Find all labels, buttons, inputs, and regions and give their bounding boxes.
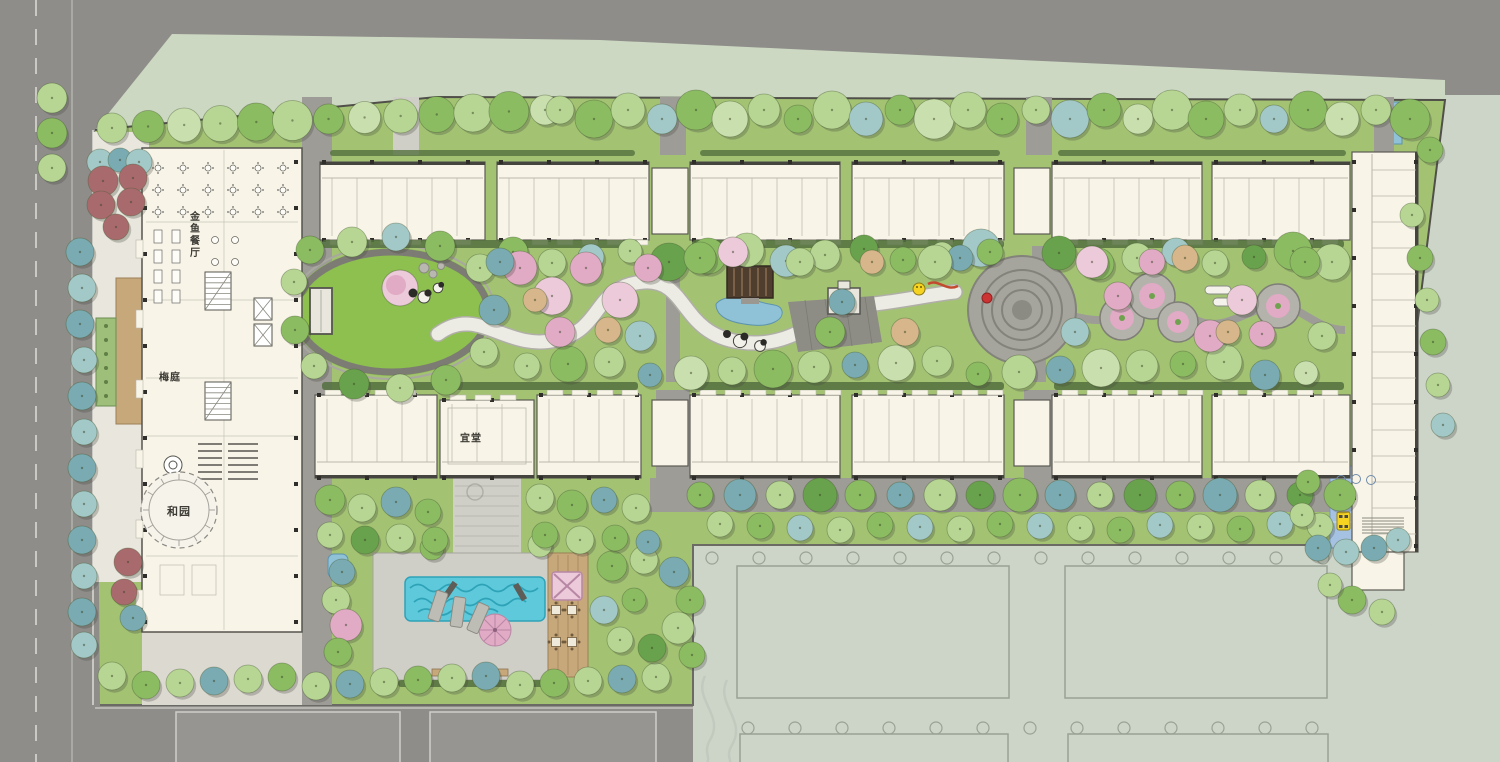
column: [1352, 400, 1356, 404]
tree-center-mark: [967, 109, 969, 111]
dining-chair: [182, 194, 184, 196]
boulder: [419, 263, 429, 273]
dining-table: [280, 165, 286, 171]
tree-center-mark: [79, 251, 81, 253]
tree-center-mark: [571, 504, 573, 506]
column: [499, 160, 503, 164]
tree-center-mark: [1159, 524, 1161, 526]
tree-center-mark: [1307, 481, 1309, 483]
tree-center-mark: [83, 359, 85, 361]
dining-chair: [262, 167, 264, 169]
column: [1214, 393, 1218, 397]
tree-center-mark: [879, 524, 881, 526]
tree-center-mark: [553, 682, 555, 684]
tree-center-mark: [689, 599, 691, 601]
tree-center-mark: [51, 132, 53, 134]
planter-center: [1275, 303, 1281, 309]
deck-chair: [571, 602, 574, 605]
dining-table: [255, 165, 261, 171]
tree-center-mark: [138, 161, 140, 163]
tree-center-mark: [1139, 494, 1141, 496]
column: [1310, 160, 1314, 164]
tree-center-mark: [399, 115, 401, 117]
tree-center-mark: [445, 379, 447, 381]
tree-center-mark: [895, 362, 897, 364]
tree-center-mark: [1091, 261, 1093, 263]
dining-table: [172, 290, 180, 303]
column: [294, 160, 298, 164]
planter-plant-dot: [104, 324, 108, 328]
tree-center-mark: [1319, 525, 1321, 527]
tree-center-mark: [732, 251, 734, 253]
building-roof-edge: [1212, 162, 1350, 165]
balcony: [1297, 390, 1313, 395]
tree-center-mark: [1409, 118, 1411, 120]
tree-center-mark: [337, 651, 339, 653]
dining-chair: [237, 189, 239, 191]
column: [143, 252, 147, 256]
dining-chair: [227, 189, 229, 191]
tree-center-mark: [1307, 109, 1309, 111]
tree-center-mark: [633, 599, 635, 601]
dining-chair: [187, 167, 189, 169]
boulder: [429, 270, 437, 278]
building-outline: [1212, 395, 1350, 478]
tree-center-mark: [1100, 367, 1102, 369]
deck-chair: [555, 616, 558, 619]
column: [539, 476, 543, 480]
dining-chair: [252, 189, 254, 191]
tree-center-mark: [871, 261, 873, 263]
tree-center-mark: [1184, 257, 1186, 259]
tree-center-mark: [1419, 257, 1421, 259]
fountain: [164, 456, 182, 474]
tree-center-mark: [417, 679, 419, 681]
column: [1214, 160, 1218, 164]
tree-center-mark: [179, 682, 181, 684]
adjacent-building-outline: [430, 712, 656, 762]
tree-center-mark: [643, 559, 645, 561]
column: [635, 476, 639, 480]
dining-chair: [257, 206, 259, 208]
tree-center-mark: [719, 523, 721, 525]
column: [1150, 476, 1154, 480]
tree-center-mark: [526, 365, 528, 367]
dining-chair: [152, 211, 154, 213]
tree-center-mark: [315, 685, 317, 687]
dining-table: [154, 270, 162, 283]
tree-center-mark: [729, 118, 731, 120]
tree-center-mark: [132, 617, 134, 619]
tree-center-mark: [1059, 369, 1061, 371]
tree-center-mark: [1341, 118, 1343, 120]
dining-chair: [287, 167, 289, 169]
column: [854, 476, 858, 480]
lobby-connector: [1014, 168, 1050, 234]
tree-center-mark: [294, 329, 296, 331]
column: [143, 436, 147, 440]
column: [413, 476, 417, 480]
tree-center-mark: [799, 527, 801, 529]
tree-center-mark: [451, 677, 453, 679]
balcony: [500, 395, 516, 400]
column: [294, 436, 298, 440]
tree-center-mark: [611, 565, 613, 567]
dining-chair: [257, 194, 259, 196]
tree-center-mark: [1119, 529, 1121, 531]
tree-center-mark: [959, 528, 961, 530]
site-plan: 金鱼餐厅 梅庭 和园 宜堂: [0, 0, 1500, 762]
tree-center-mark: [1305, 372, 1307, 374]
balcony: [547, 390, 563, 395]
balcony: [862, 390, 878, 395]
column: [418, 160, 422, 164]
residential-building: [1052, 390, 1203, 480]
tree-center-mark: [690, 372, 692, 374]
lobby-connector: [652, 400, 688, 466]
dining-chair: [182, 172, 184, 174]
tree-center-mark: [363, 116, 365, 118]
tree-center-mark: [539, 497, 541, 499]
dining-chair: [202, 167, 204, 169]
column: [1414, 160, 1418, 164]
tree-center-mark: [551, 295, 553, 297]
building-outline: [852, 395, 1004, 478]
tree-center-mark: [854, 364, 856, 366]
dining-chair: [207, 172, 209, 174]
tree-center-mark: [1059, 494, 1061, 496]
bus-window: [1345, 525, 1349, 528]
column: [442, 476, 446, 480]
tree-center-mark: [797, 118, 799, 120]
building-roof-edge: [690, 475, 840, 478]
tree-center-mark: [81, 467, 83, 469]
tree-center-mark: [1019, 494, 1021, 496]
dining-chair: [232, 206, 234, 208]
dining-chair: [207, 216, 209, 218]
tree-center-mark: [99, 161, 101, 163]
column: [294, 574, 298, 578]
tree-center-mark: [1261, 333, 1263, 335]
tree-center-mark: [1437, 384, 1439, 386]
deck-chair: [571, 634, 574, 637]
dining-table: [155, 209, 161, 215]
tree-center-mark: [479, 267, 481, 269]
column: [1352, 448, 1356, 452]
balcony: [1162, 390, 1178, 395]
column: [692, 160, 696, 164]
tree-center-mark: [79, 323, 81, 325]
tree-center-mark: [439, 245, 441, 247]
tree-center-mark: [902, 259, 904, 261]
balcony: [700, 390, 716, 395]
dining-chair: [182, 184, 184, 186]
dining-table: [180, 209, 186, 215]
balcony: [136, 380, 143, 398]
dining-chair: [162, 167, 164, 169]
column: [998, 476, 1002, 480]
balcony: [800, 390, 816, 395]
tree-center-mark: [649, 374, 651, 376]
dining-chair: [152, 189, 154, 191]
dining-chair: [162, 211, 164, 213]
tree-center-mark: [627, 109, 629, 111]
tree-center-mark: [621, 678, 623, 680]
dining-chair: [257, 172, 259, 174]
panda-head: [424, 289, 431, 296]
column: [1414, 400, 1418, 404]
balcony: [136, 310, 143, 328]
panda-head: [438, 282, 444, 288]
building-outline: [1052, 162, 1202, 240]
dining-chair: [157, 184, 159, 186]
tree-center-mark: [130, 201, 132, 203]
tree-center-mark: [839, 529, 841, 531]
dining-chair: [232, 184, 234, 186]
column: [1352, 256, 1356, 260]
tree-center-mark: [399, 387, 401, 389]
balcony: [622, 390, 638, 395]
planter-plant-dot: [104, 352, 108, 356]
dining-chair: [207, 206, 209, 208]
tree-center-mark: [1199, 526, 1201, 528]
balcony: [775, 390, 791, 395]
column: [294, 206, 298, 210]
tree-center-mark: [1373, 547, 1375, 549]
tree-center-mark: [1259, 494, 1261, 496]
tree-center-mark: [436, 113, 438, 115]
tree-center-mark: [1339, 494, 1341, 496]
dining-chair: [187, 211, 189, 213]
dining-chair: [212, 167, 214, 169]
tree-center-mark: [603, 609, 605, 611]
tree-center-mark: [327, 118, 329, 120]
dining-chair: [252, 211, 254, 213]
dining-chair: [277, 189, 279, 191]
dining-chair: [237, 167, 239, 169]
tree-center-mark: [1264, 374, 1266, 376]
tree-center-mark: [585, 267, 587, 269]
tree-center-mark: [281, 676, 283, 678]
tree-center-mark: [1001, 118, 1003, 120]
community-building: [136, 148, 302, 632]
tree-center-mark: [483, 351, 485, 353]
dining-table: [212, 259, 219, 266]
tree-center-mark: [519, 267, 521, 269]
dining-chair: [282, 184, 284, 186]
dining-table: [154, 230, 162, 243]
tree-center-mark: [1214, 262, 1216, 264]
tree-center-mark: [677, 627, 679, 629]
tree-center-mark: [936, 360, 938, 362]
tree-center-mark: [313, 365, 315, 367]
dining-chair: [282, 172, 284, 174]
column: [902, 476, 906, 480]
tree-center-mark: [863, 248, 865, 250]
column: [294, 298, 298, 302]
dining-chair: [212, 211, 214, 213]
column: [1352, 352, 1356, 356]
tree-center-mark: [831, 109, 833, 111]
dining-chair: [257, 216, 259, 218]
balcony: [887, 390, 903, 395]
tree-center-mark: [559, 109, 561, 111]
tree-center-mark: [919, 526, 921, 528]
tree-center-mark: [1351, 599, 1353, 601]
adjacent-building-outline: [176, 712, 400, 762]
site-plan-canvas: [0, 0, 1500, 762]
dining-chair: [157, 206, 159, 208]
tree-center-mark: [485, 675, 487, 677]
tree-center-mark: [824, 254, 826, 256]
tree-center-mark: [619, 639, 621, 641]
tree-center-mark: [1397, 539, 1399, 541]
deck-chair: [555, 602, 558, 605]
tree-center-mark: [83, 575, 85, 577]
flower-planter: [1158, 302, 1198, 342]
column: [950, 476, 954, 480]
tree-center-mark: [119, 159, 121, 161]
tree-center-mark: [829, 331, 831, 333]
dining-table: [172, 250, 180, 263]
dining-chair: [257, 184, 259, 186]
column: [322, 160, 326, 164]
dining-chair: [282, 216, 284, 218]
dining-chair: [202, 189, 204, 191]
dining-chair: [157, 216, 159, 218]
column: [1102, 160, 1106, 164]
tree-center-mark: [1018, 371, 1020, 373]
building-outline: [315, 395, 437, 478]
dining-table: [212, 237, 219, 244]
tree-center-mark: [1227, 331, 1229, 333]
balcony: [1222, 390, 1238, 395]
planter-center: [1119, 315, 1125, 321]
tree-center-mark: [364, 539, 366, 541]
dining-chair: [157, 162, 159, 164]
tree-center-mark: [635, 507, 637, 509]
tree-center-mark: [1331, 261, 1333, 263]
building-roof-edge: [1212, 475, 1350, 478]
tree-center-mark: [183, 124, 185, 126]
deck-chair: [564, 641, 567, 644]
dining-chair: [282, 206, 284, 208]
tree-center-mark: [1381, 611, 1383, 613]
lobby-connector: [1014, 400, 1050, 466]
tree-center-mark: [1074, 331, 1076, 333]
column: [1352, 208, 1356, 212]
panda-head: [740, 333, 748, 341]
balcony: [825, 390, 841, 395]
bus-body: [1337, 512, 1350, 530]
tree-center-mark: [1301, 514, 1303, 516]
tree-center-mark: [989, 251, 991, 253]
tree-center-mark: [1239, 528, 1241, 530]
tree-center-mark: [1079, 527, 1081, 529]
dining-chair: [287, 189, 289, 191]
tree-center-mark: [899, 494, 901, 496]
tree-center-mark: [1103, 109, 1105, 111]
tree-center-mark: [603, 499, 605, 501]
tree-center-mark: [499, 261, 501, 263]
tree-center-mark: [1219, 494, 1221, 496]
tree-center-mark: [567, 363, 569, 365]
building-outline: [1052, 395, 1202, 478]
balcony: [136, 450, 143, 468]
tree-center-mark: [779, 494, 781, 496]
pavilion-step: [741, 298, 759, 304]
deck-table: [568, 638, 577, 647]
tree-center-mark: [115, 226, 117, 228]
building-roof-edge: [852, 162, 1004, 165]
balcony: [725, 390, 741, 395]
tree-center-mark: [395, 501, 397, 503]
hedge-strip: [330, 150, 635, 156]
tree-center-mark: [614, 537, 616, 539]
blossom-tree-center: [386, 275, 406, 295]
balcony: [937, 390, 953, 395]
balcony: [1112, 390, 1128, 395]
building-roof-edge: [1052, 475, 1202, 478]
building-roof-edge: [440, 475, 534, 478]
tree-center-mark: [534, 299, 536, 301]
tree-center-mark: [291, 119, 293, 121]
tree-center-mark: [1321, 335, 1323, 337]
planter-plant-dot: [104, 366, 108, 370]
dining-chair: [232, 162, 234, 164]
column: [692, 393, 696, 397]
column: [1414, 448, 1418, 452]
tree-center-mark: [335, 599, 337, 601]
building-outline: [1212, 162, 1350, 240]
garden-structure: [838, 281, 850, 289]
balcony: [750, 390, 766, 395]
dining-chair: [177, 189, 179, 191]
deck-chair: [548, 609, 551, 612]
tree-center-mark: [1137, 118, 1139, 120]
dining-table: [232, 259, 239, 266]
dining-table: [205, 209, 211, 215]
tree-center-mark: [329, 499, 331, 501]
tree-center-mark: [934, 261, 936, 263]
tree-center-mark: [1182, 363, 1184, 365]
building-outline: [537, 395, 641, 478]
tree-center-mark: [899, 109, 901, 111]
column: [1414, 496, 1418, 500]
dining-chair: [282, 194, 284, 196]
smiley-eye: [916, 286, 918, 288]
dining-chair: [227, 211, 229, 213]
tree-center-mark: [329, 534, 331, 536]
dining-chair: [232, 194, 234, 196]
tree-center-mark: [1411, 214, 1413, 216]
column: [370, 160, 374, 164]
dining-table: [280, 187, 286, 193]
dining-table: [205, 187, 211, 193]
deck-chair: [571, 616, 574, 619]
building-roof-edge: [497, 162, 649, 165]
column: [902, 160, 906, 164]
tree-center-mark: [1426, 299, 1428, 301]
dining-table: [172, 230, 180, 243]
tree-center-mark: [383, 681, 385, 683]
residential-building: [1212, 160, 1350, 245]
residential-building: [537, 390, 641, 480]
tree-center-mark: [587, 680, 589, 682]
column: [294, 620, 298, 624]
column: [788, 160, 792, 164]
tree-center-mark: [904, 331, 906, 333]
